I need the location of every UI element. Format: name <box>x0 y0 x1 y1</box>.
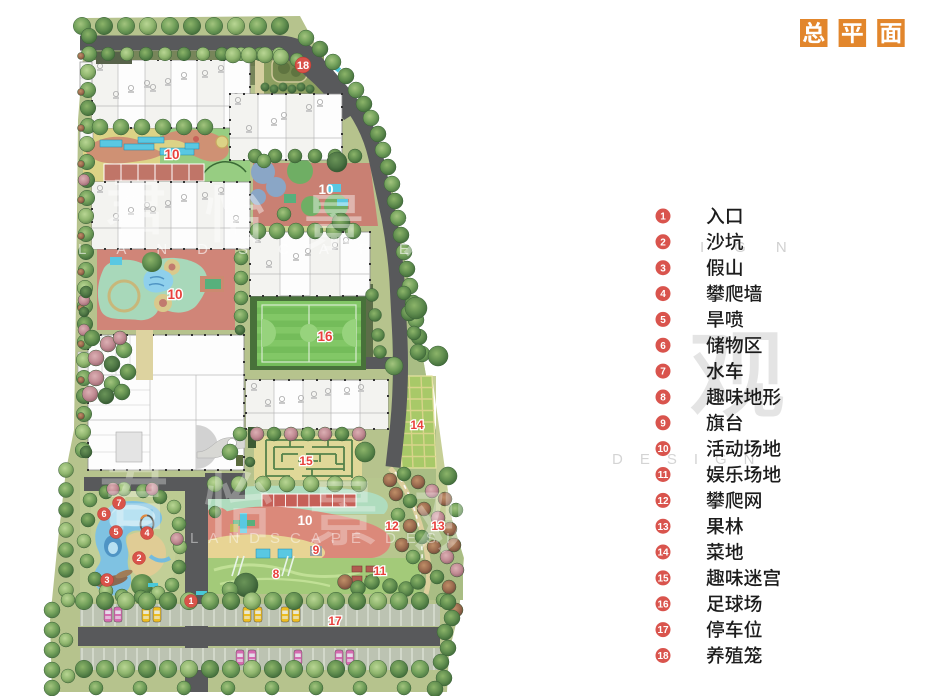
svg-text:4: 4 <box>660 289 666 300</box>
svg-text:11: 11 <box>374 564 387 578</box>
svg-text:18: 18 <box>657 651 669 662</box>
svg-text:11: 11 <box>658 470 669 481</box>
svg-text:3: 3 <box>660 263 666 274</box>
svg-text:12: 12 <box>385 519 399 533</box>
svg-text:1: 1 <box>188 596 193 606</box>
svg-text:LANDSCAPE DESIGN: LANDSCAPE DESIGN <box>78 241 711 258</box>
svg-text:18: 18 <box>297 60 309 72</box>
svg-text:15: 15 <box>657 574 669 585</box>
svg-text:10: 10 <box>297 513 312 528</box>
svg-text:3: 3 <box>104 575 109 585</box>
svg-text:14: 14 <box>410 418 424 432</box>
svg-text:15: 15 <box>299 454 313 468</box>
svg-text:LANDSCAPE DESIGN: LANDSCAPE DESIGN <box>190 530 503 547</box>
svg-text:17: 17 <box>328 614 342 628</box>
svg-text:16: 16 <box>317 329 333 344</box>
svg-text:10: 10 <box>657 444 669 455</box>
svg-text:1: 1 <box>660 212 666 223</box>
svg-text:8: 8 <box>660 393 666 404</box>
svg-text:2: 2 <box>136 553 141 563</box>
svg-text:16: 16 <box>657 599 669 610</box>
svg-text:17: 17 <box>657 625 669 636</box>
svg-text:9: 9 <box>660 418 666 429</box>
svg-text:13: 13 <box>657 522 669 533</box>
svg-text:6: 6 <box>101 509 106 519</box>
svg-text:13: 13 <box>431 519 445 533</box>
svg-text:10: 10 <box>318 182 333 197</box>
svg-text:9: 9 <box>313 543 320 557</box>
svg-text:5: 5 <box>660 315 666 326</box>
svg-text:2: 2 <box>660 237 666 248</box>
svg-text:DESIGN: DESIGN <box>612 451 772 468</box>
svg-text:5: 5 <box>113 527 118 537</box>
svg-text:10: 10 <box>167 287 182 302</box>
svg-text:7: 7 <box>116 498 121 508</box>
svg-text:14: 14 <box>657 548 669 559</box>
svg-text:10: 10 <box>164 147 179 162</box>
svg-text:6: 6 <box>660 341 666 352</box>
svg-text:12: 12 <box>657 496 669 507</box>
svg-text:7: 7 <box>660 367 666 378</box>
svg-text:4: 4 <box>144 528 149 538</box>
svg-text:8: 8 <box>273 567 280 581</box>
